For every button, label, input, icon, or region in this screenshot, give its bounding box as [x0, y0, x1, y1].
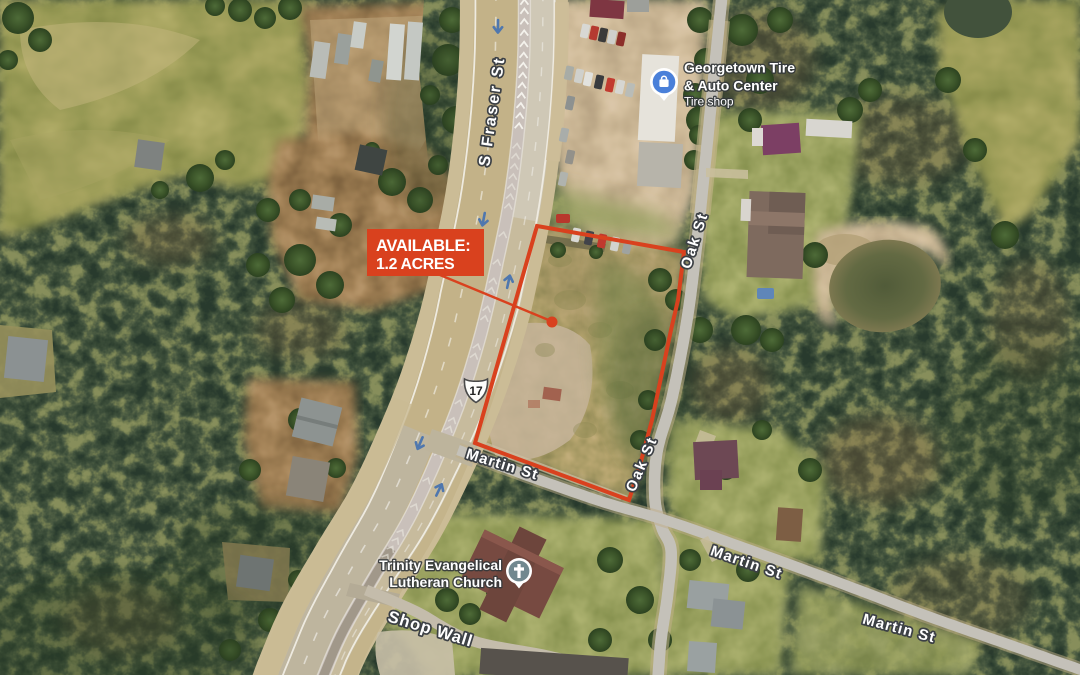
svg-text:Trinity Evangelical: Trinity Evangelical — [379, 557, 502, 573]
svg-text:& Auto Center: & Auto Center — [684, 78, 778, 94]
svg-text:17: 17 — [469, 384, 483, 398]
svg-text:Tire shop: Tire shop — [684, 95, 734, 109]
svg-text:Georgetown Tire: Georgetown Tire — [684, 60, 795, 76]
svg-text:1.2 ACRES: 1.2 ACRES — [376, 256, 454, 273]
svg-text:Lutheran Church: Lutheran Church — [389, 574, 502, 590]
svg-text:AVAILABLE:: AVAILABLE: — [376, 237, 470, 255]
